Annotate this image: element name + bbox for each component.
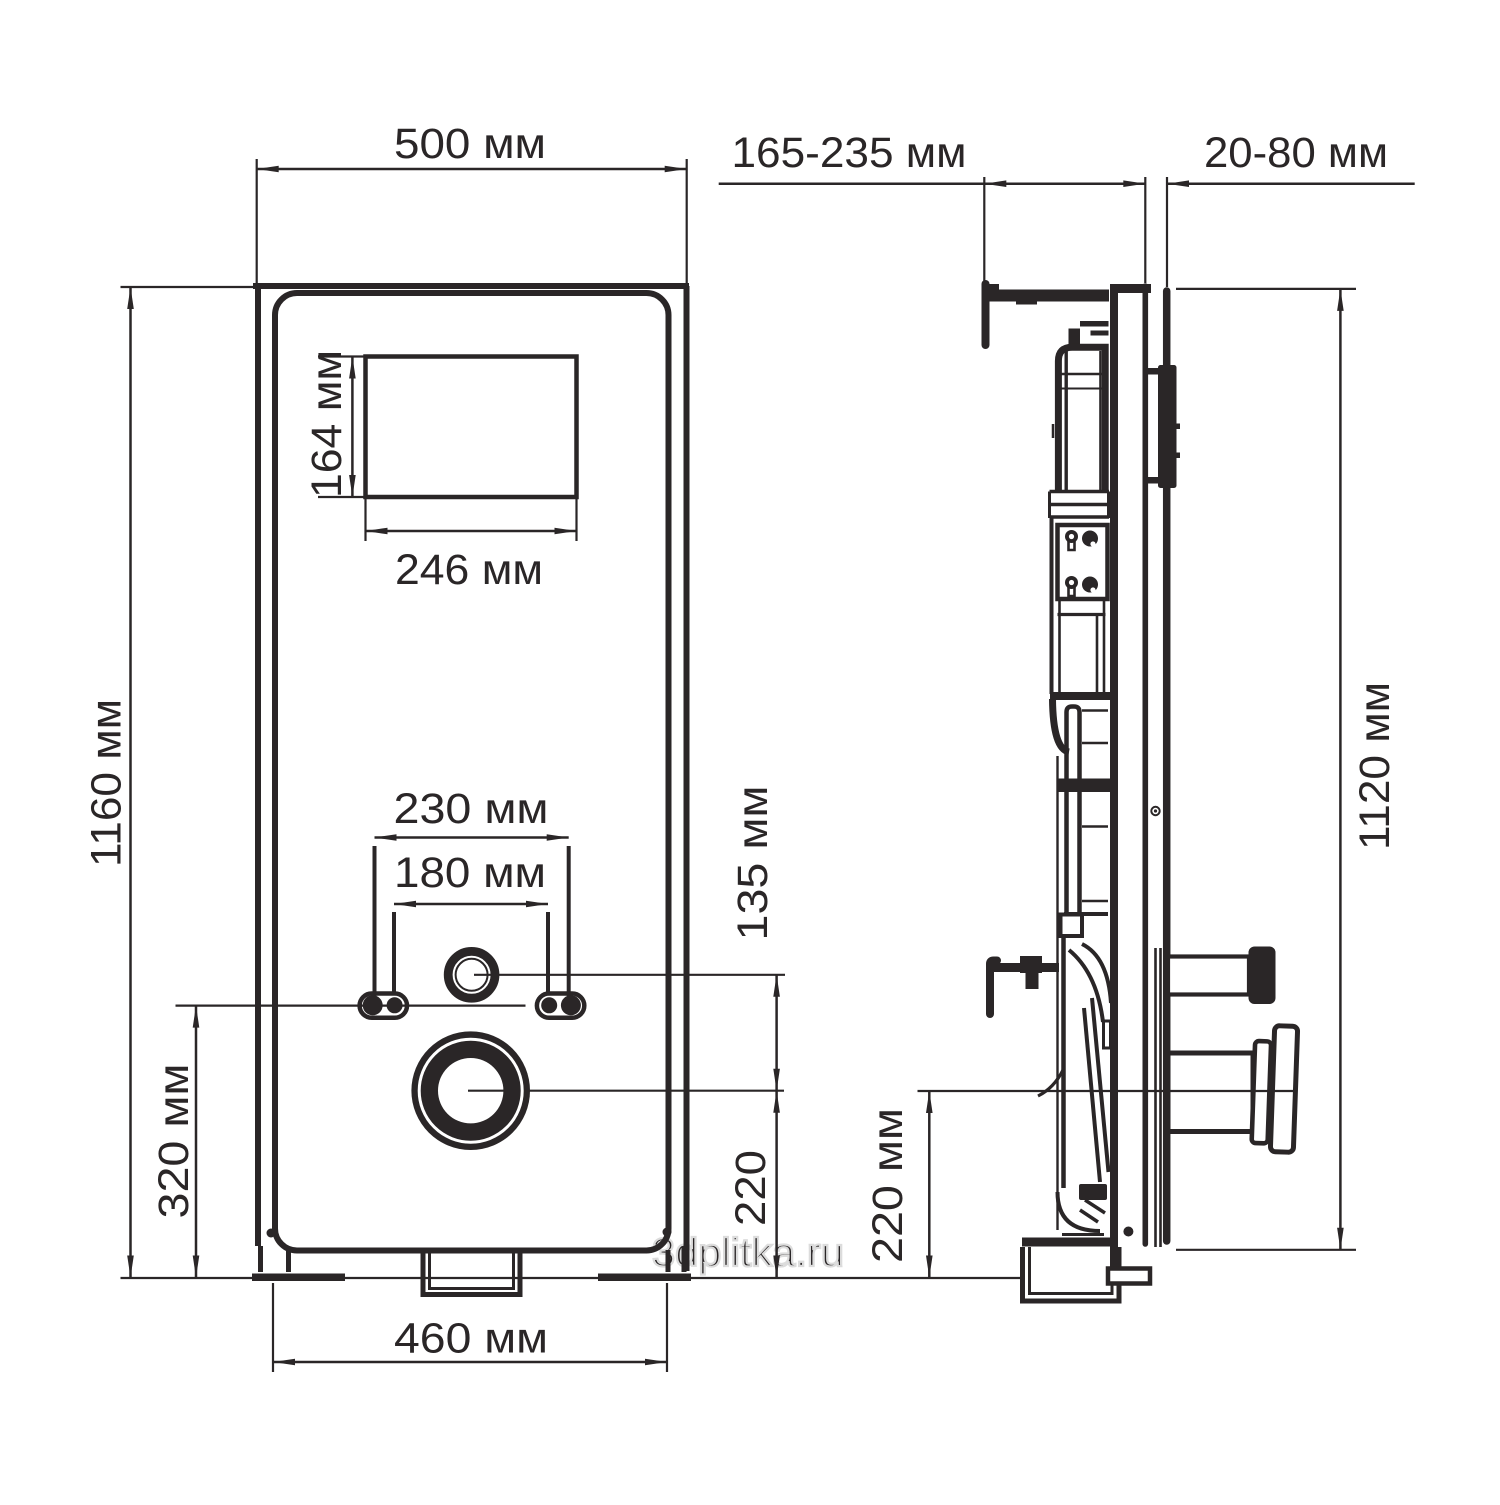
- svg-text:164 мм: 164 мм: [303, 350, 351, 498]
- svg-text:180 мм: 180 мм: [394, 849, 546, 897]
- svg-text:230 мм: 230 мм: [394, 785, 549, 833]
- svg-text:460 мм: 460 мм: [394, 1315, 548, 1363]
- svg-text:135 мм: 135 мм: [729, 786, 777, 941]
- svg-text:165-235 мм: 165-235 мм: [732, 129, 967, 177]
- svg-text:1160 мм: 1160 мм: [83, 699, 131, 867]
- svg-text:220: 220: [727, 1150, 775, 1226]
- svg-text:3dplitka.ru: 3dplitka.ru: [652, 1231, 844, 1275]
- svg-text:246 мм: 246 мм: [395, 546, 543, 594]
- svg-text:320 мм: 320 мм: [150, 1064, 198, 1219]
- svg-text:20-80 мм: 20-80 мм: [1204, 129, 1388, 177]
- svg-text:220 мм: 220 мм: [864, 1108, 912, 1263]
- svg-text:1120 мм: 1120 мм: [1351, 682, 1399, 850]
- svg-text:500 мм: 500 мм: [394, 120, 546, 168]
